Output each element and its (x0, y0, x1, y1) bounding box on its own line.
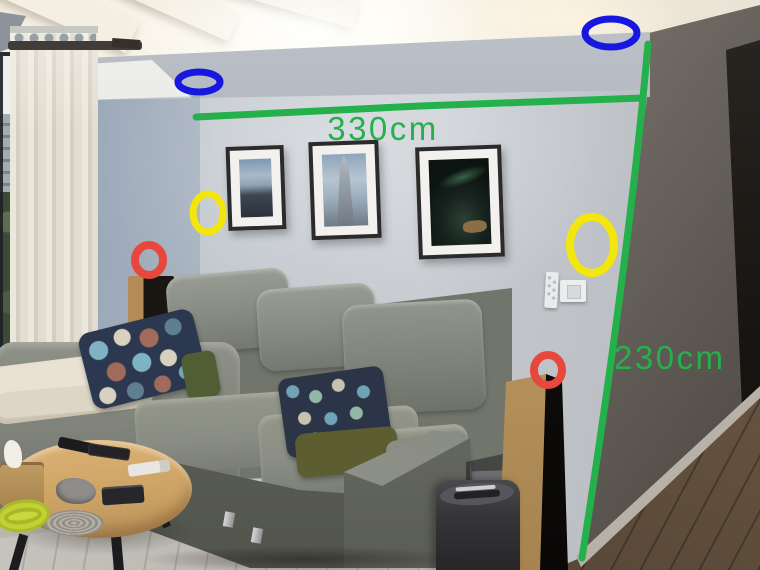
deer-figure (462, 219, 487, 233)
light-switch (560, 280, 586, 302)
picture-mountain (239, 158, 273, 217)
picture-church-tower (322, 153, 368, 226)
woven-coaster (44, 510, 104, 536)
shredder-top (439, 480, 514, 507)
picture-frame-middle (308, 140, 381, 240)
picture-frame-right (415, 145, 505, 260)
tower-silhouette (322, 153, 368, 226)
switch-rocker (567, 285, 581, 299)
wall-mounted-remote (544, 272, 559, 309)
wallet (101, 485, 144, 506)
picture-aurora-deer (429, 158, 492, 246)
sofa-shadow (140, 546, 470, 570)
gray-cloth (56, 478, 96, 504)
living-room-photo: 330cm 230cm (0, 0, 760, 570)
picture-frame-left (226, 145, 287, 231)
curtain-rail-bracket (112, 38, 141, 49)
aurora-glow (436, 160, 490, 193)
